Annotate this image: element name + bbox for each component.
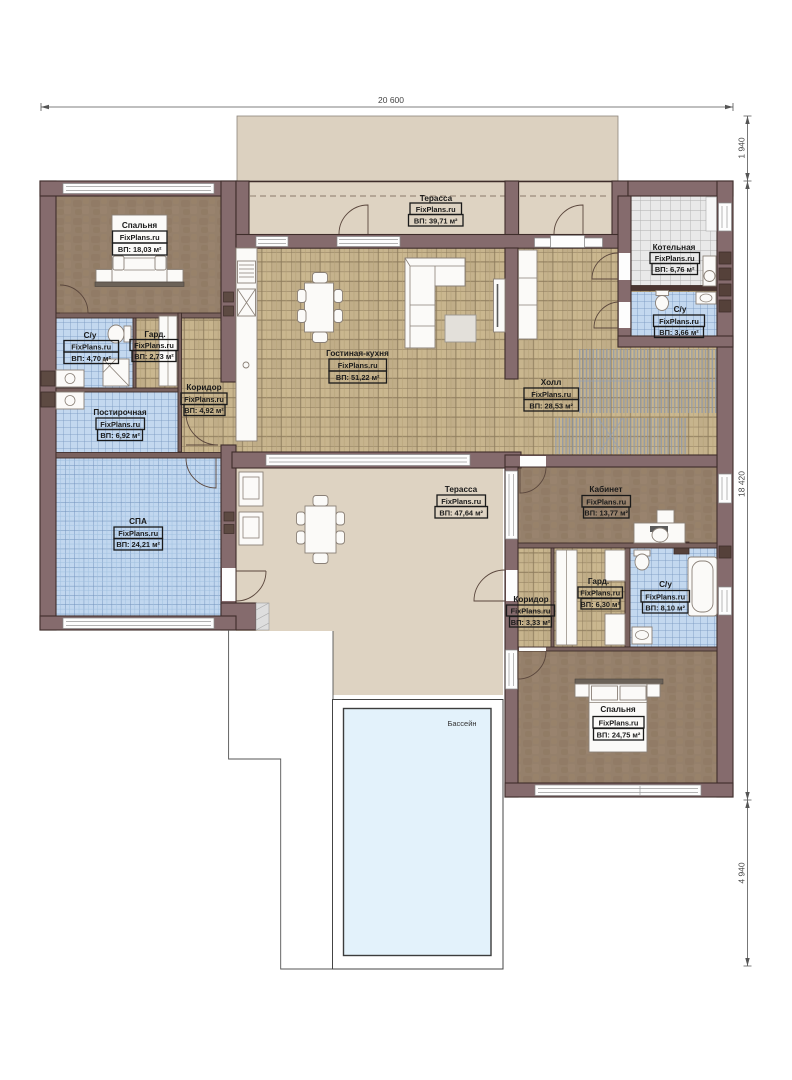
svg-text:С/у: С/у (659, 580, 672, 589)
svg-text:ВП: 28,53 м²: ВП: 28,53 м² (529, 402, 573, 411)
svg-text:FixPlans.ru: FixPlans.ru (655, 254, 695, 263)
svg-text:FixPlans.ru: FixPlans.ru (184, 395, 224, 404)
svg-text:20 600: 20 600 (378, 95, 404, 105)
svg-text:Гард.: Гард. (588, 577, 609, 586)
svg-text:FixPlans.ru: FixPlans.ru (120, 233, 160, 242)
svg-text:Кабинет: Кабинет (589, 484, 622, 494)
svg-text:ВП: 8,10 м²: ВП: 8,10 м² (645, 604, 685, 613)
svg-text:FixPlans.ru: FixPlans.ru (580, 589, 620, 598)
svg-text:ВП: 24,75 м²: ВП: 24,75 м² (597, 731, 641, 740)
svg-text:FixPlans.ru: FixPlans.ru (599, 719, 639, 728)
svg-text:Постирочная: Постирочная (93, 408, 146, 417)
svg-text:FixPlans.ru: FixPlans.ru (100, 420, 140, 429)
svg-text:FixPlans.ru: FixPlans.ru (659, 317, 699, 326)
svg-text:FixPlans.ru: FixPlans.ru (416, 205, 456, 214)
svg-text:Коридор: Коридор (513, 595, 548, 604)
svg-text:Гостиная-кухня: Гостиная-кухня (326, 349, 389, 358)
svg-text:ВП: 4,70 м²: ВП: 4,70 м² (71, 354, 111, 363)
svg-text:FixPlans.ru: FixPlans.ru (71, 343, 111, 352)
svg-text:ВП: 3,33 м²: ВП: 3,33 м² (511, 618, 551, 627)
svg-text:ВП: 13,77 м²: ВП: 13,77 м² (584, 509, 628, 518)
svg-text:ВП: 6,30 м²: ВП: 6,30 м² (580, 600, 620, 609)
svg-text:1 940: 1 940 (737, 137, 747, 159)
svg-text:FixPlans.ru: FixPlans.ru (586, 498, 626, 507)
svg-text:4 940: 4 940 (737, 862, 747, 884)
svg-text:Спальня: Спальня (600, 705, 636, 714)
svg-text:Бассейн: Бассейн (447, 719, 476, 728)
svg-text:Спальня: Спальня (122, 221, 158, 230)
svg-text:ВП: 18,03 м²: ВП: 18,03 м² (118, 245, 162, 254)
svg-text:Гард.: Гард. (144, 330, 165, 339)
svg-text:ВП: 6,76 м²: ВП: 6,76 м² (655, 265, 695, 274)
svg-text:Терасса: Терасса (420, 194, 453, 203)
svg-text:ВП: 39,71 м²: ВП: 39,71 м² (414, 217, 458, 226)
svg-text:ВП: 6,92 м²: ВП: 6,92 м² (100, 431, 140, 440)
svg-text:FixPlans.ru: FixPlans.ru (531, 390, 571, 399)
svg-text:FixPlans.ru: FixPlans.ru (134, 341, 174, 350)
svg-text:FixPlans.ru: FixPlans.ru (118, 529, 158, 538)
svg-text:18 420: 18 420 (737, 471, 747, 497)
svg-text:Холл: Холл (541, 378, 562, 387)
svg-text:FixPlans.ru: FixPlans.ru (441, 497, 481, 506)
svg-text:Терасса: Терасса (445, 485, 478, 494)
svg-text:ВП: 2,73 м²: ВП: 2,73 м² (134, 352, 174, 361)
svg-text:ВП: 51,22 м²: ВП: 51,22 м² (336, 373, 380, 382)
svg-text:ВП: 3,66 м²: ВП: 3,66 м² (659, 328, 699, 337)
svg-text:ВП: 24,21 м²: ВП: 24,21 м² (116, 540, 160, 549)
svg-text:Коридор: Коридор (186, 383, 221, 392)
svg-text:Котельная: Котельная (653, 243, 696, 252)
svg-text:СПА: СПА (129, 517, 147, 526)
svg-text:FixPlans.ru: FixPlans.ru (645, 593, 685, 602)
svg-text:ВП: 47,64 м²: ВП: 47,64 м² (439, 509, 483, 518)
svg-text:С/у: С/у (674, 305, 687, 314)
svg-text:ВП: 4,92 м²: ВП: 4,92 м² (184, 406, 224, 415)
svg-text:FixPlans.ru: FixPlans.ru (338, 361, 378, 370)
svg-text:FixPlans.ru: FixPlans.ru (511, 607, 551, 616)
svg-text:С/у: С/у (84, 331, 97, 340)
